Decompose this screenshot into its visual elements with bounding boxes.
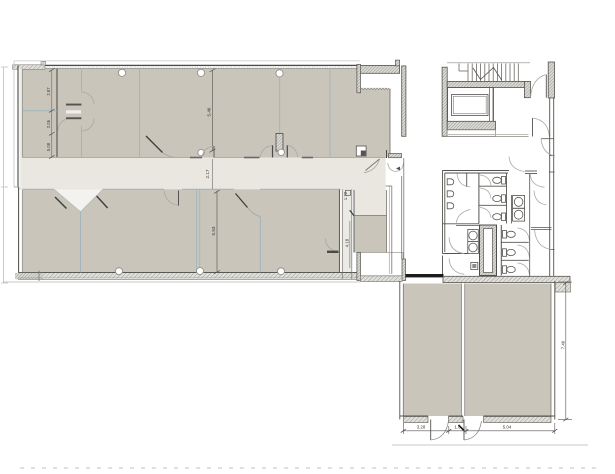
svg-text:5.08: 5.08 [46, 142, 51, 151]
svg-text:5.04: 5.04 [503, 425, 512, 430]
svg-text:7.40: 7.40 [560, 340, 565, 349]
svg-text:5.46: 5.46 [207, 107, 212, 116]
svg-text:3.28: 3.28 [417, 425, 426, 430]
svg-text:2.06: 2.06 [46, 119, 51, 128]
svg-text:5.53: 5.53 [211, 226, 216, 235]
svg-text:4.18: 4.18 [345, 238, 350, 247]
svg-text:2.87: 2.87 [46, 87, 51, 96]
svg-text:2.17: 2.17 [205, 169, 210, 178]
svg-text:1.72: 1.72 [343, 191, 348, 200]
svg-text:1.0: 1.0 [454, 425, 461, 430]
